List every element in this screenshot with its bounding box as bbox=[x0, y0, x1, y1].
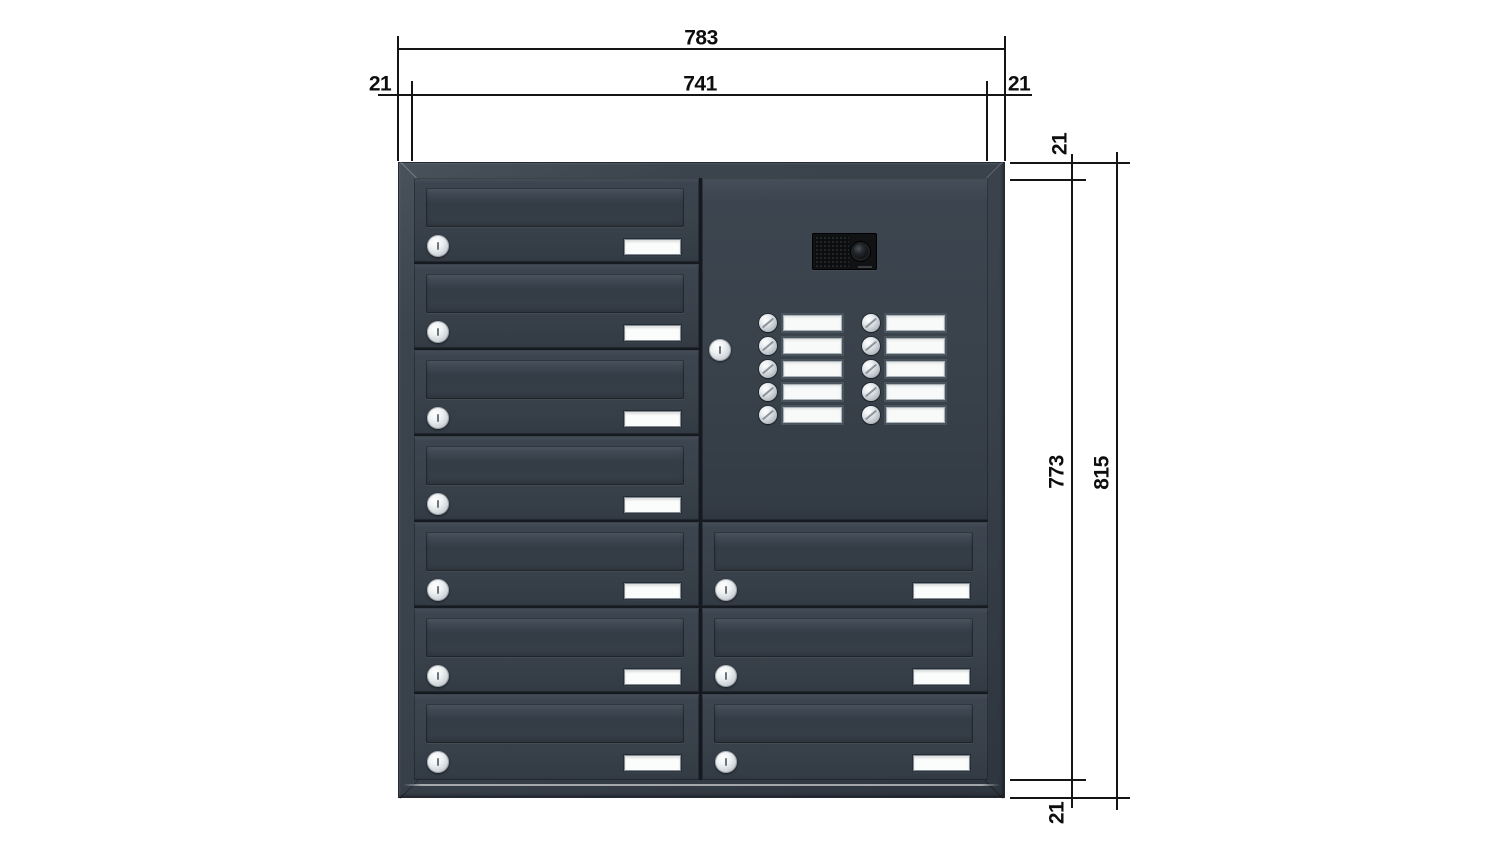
bell-unit bbox=[862, 360, 945, 378]
cabinet-interior bbox=[414, 178, 988, 780]
dim-line-height-inner bbox=[1071, 154, 1073, 808]
lock-icon bbox=[709, 339, 731, 361]
lock-icon bbox=[427, 665, 449, 687]
letter-flap bbox=[426, 618, 684, 657]
bell-unit bbox=[759, 383, 842, 401]
tick-top-outer bbox=[1010, 162, 1130, 164]
name-plate bbox=[913, 583, 970, 599]
dim-label-margin-top: 21 bbox=[1050, 133, 1071, 155]
letter-flap bbox=[426, 274, 684, 313]
tick-bottom-outer bbox=[1010, 797, 1130, 799]
bell-name-plate bbox=[783, 338, 842, 354]
bell-button-icon bbox=[759, 314, 777, 332]
dim-label-width-inner: 741 bbox=[683, 74, 717, 95]
technical-drawing-canvas: 783 741 21 21 21 773 815 21 bbox=[0, 0, 1500, 856]
name-plate bbox=[624, 411, 681, 427]
letter-flap bbox=[714, 532, 973, 571]
lock-icon bbox=[427, 321, 449, 343]
bell-button-icon bbox=[862, 314, 880, 332]
speaker-grille-icon bbox=[815, 236, 849, 267]
camera-label bbox=[858, 266, 872, 268]
mailbox-column-left bbox=[414, 178, 699, 780]
letter-flap bbox=[714, 618, 973, 657]
dim-label-margin-bottom: 21 bbox=[1047, 802, 1068, 824]
mailbox-door bbox=[414, 178, 699, 262]
lock-icon bbox=[427, 407, 449, 429]
mailbox-door bbox=[702, 522, 988, 606]
letter-flap bbox=[426, 446, 684, 485]
bell-unit bbox=[759, 360, 842, 378]
mailbox-door bbox=[414, 350, 699, 434]
dim-line-height-outer bbox=[1116, 152, 1118, 810]
ext-line-left-outer bbox=[397, 36, 399, 161]
bell-name-plate bbox=[886, 315, 945, 331]
bell-unit bbox=[862, 314, 945, 332]
dim-label-height-outer: 815 bbox=[1092, 456, 1113, 490]
mailbox-door bbox=[702, 608, 988, 692]
frame-miter bbox=[984, 780, 1003, 799]
bell-button-icon bbox=[862, 383, 880, 401]
frame-miter bbox=[399, 780, 418, 799]
dim-label-width-outer: 783 bbox=[684, 28, 718, 49]
camera-lens-icon bbox=[851, 242, 870, 261]
tick-bottom-inner bbox=[1010, 779, 1086, 781]
mailbox-door bbox=[414, 694, 699, 780]
camera-module bbox=[812, 233, 877, 270]
mailbox-door bbox=[702, 694, 988, 780]
ext-line-right-inner bbox=[986, 81, 988, 161]
letterbox-cabinet bbox=[398, 162, 1005, 798]
lock-icon bbox=[715, 579, 737, 601]
bell-unit bbox=[862, 383, 945, 401]
bell-name-plate bbox=[886, 361, 945, 377]
bell-button-icon bbox=[759, 360, 777, 378]
bell-name-plate bbox=[783, 407, 842, 423]
bell-button-icon bbox=[759, 406, 777, 424]
lock-icon bbox=[715, 751, 737, 773]
bell-button-icon bbox=[759, 337, 777, 355]
bell-button-icon bbox=[862, 406, 880, 424]
mailbox-door bbox=[414, 264, 699, 348]
mailbox-door bbox=[414, 436, 699, 520]
bell-button-icon bbox=[759, 383, 777, 401]
frame-bottom-bevel bbox=[403, 784, 1000, 786]
bell-unit bbox=[862, 406, 945, 424]
dim-label-height-inner: 773 bbox=[1047, 455, 1068, 489]
name-plate bbox=[913, 755, 970, 771]
intercom-door bbox=[702, 178, 988, 520]
bell-name-plate bbox=[783, 384, 842, 400]
bell-name-plate bbox=[886, 338, 945, 354]
bell-button-icon bbox=[862, 337, 880, 355]
dim-label-margin-right: 21 bbox=[1008, 74, 1030, 95]
ext-line-right-outer bbox=[1004, 36, 1006, 161]
letter-flap bbox=[426, 188, 684, 227]
lock-icon bbox=[427, 493, 449, 515]
bell-name-plate bbox=[886, 384, 945, 400]
mailbox-door bbox=[414, 522, 699, 606]
bell-button-column bbox=[862, 314, 945, 424]
lock-icon bbox=[427, 579, 449, 601]
mailbox-door bbox=[414, 608, 699, 692]
tick-top-inner bbox=[1010, 179, 1086, 181]
name-plate bbox=[913, 669, 970, 685]
bell-unit bbox=[862, 337, 945, 355]
bell-name-plate bbox=[783, 361, 842, 377]
lock-icon bbox=[427, 235, 449, 257]
letter-flap bbox=[426, 704, 684, 743]
bell-name-plate bbox=[886, 407, 945, 423]
bell-unit bbox=[759, 406, 842, 424]
bell-button-icon bbox=[862, 360, 880, 378]
name-plate bbox=[624, 755, 681, 771]
name-plate bbox=[624, 239, 681, 255]
bell-name-plate bbox=[783, 315, 842, 331]
dim-label-margin-left: 21 bbox=[369, 74, 391, 95]
bell-unit bbox=[759, 314, 842, 332]
bell-unit bbox=[759, 337, 842, 355]
mailbox-column-right bbox=[702, 178, 988, 780]
letter-flap bbox=[714, 704, 973, 743]
letter-flap bbox=[426, 532, 684, 571]
name-plate bbox=[624, 669, 681, 685]
name-plate bbox=[624, 583, 681, 599]
name-plate bbox=[624, 497, 681, 513]
ext-line-left-inner bbox=[411, 81, 413, 161]
lock-icon bbox=[715, 665, 737, 687]
letter-flap bbox=[426, 360, 684, 399]
bell-button-column bbox=[759, 314, 842, 424]
name-plate bbox=[624, 325, 681, 341]
lock-icon bbox=[427, 751, 449, 773]
